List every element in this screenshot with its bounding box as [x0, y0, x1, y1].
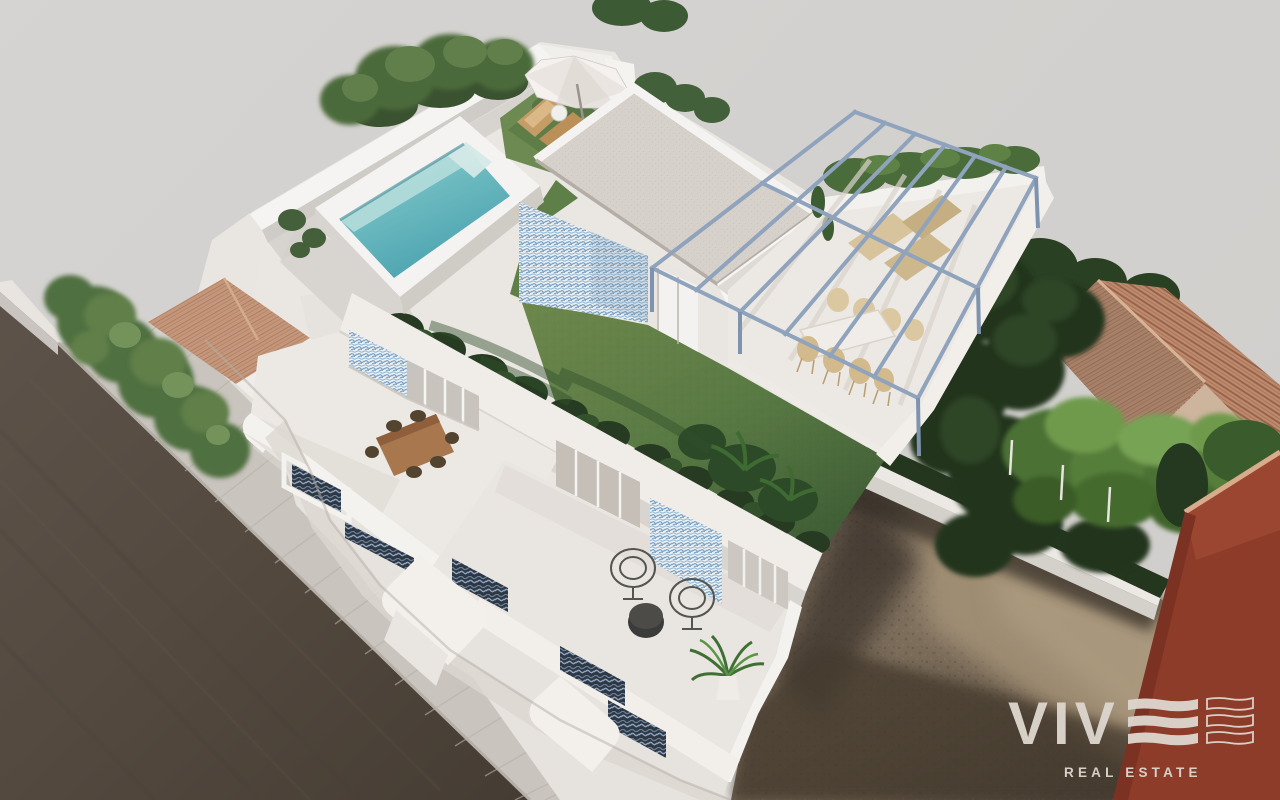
svg-text:VIV: VIV — [1008, 690, 1120, 757]
svg-text:REAL ESTATE: REAL ESTATE — [1064, 765, 1202, 780]
